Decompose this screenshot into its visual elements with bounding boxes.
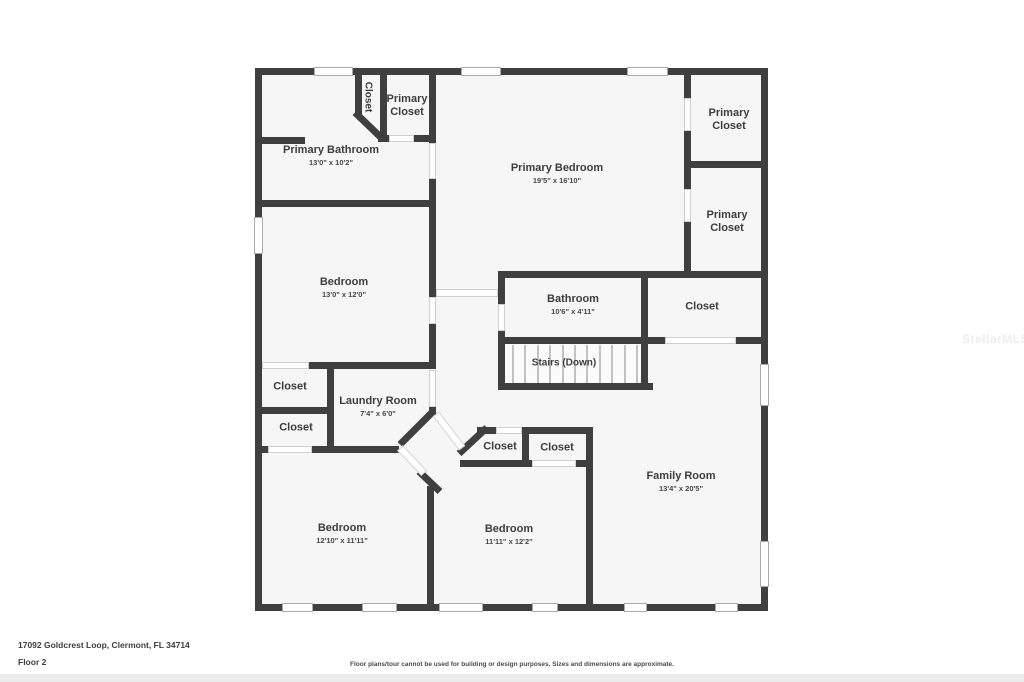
wall-segment bbox=[255, 68, 262, 611]
room-label-laundry-room: Laundry Room7'4" x 6'0" bbox=[339, 395, 417, 419]
room-label-family-room: Family Room13'4" x 20'5" bbox=[646, 470, 715, 494]
property-address: 17092 Goldcrest Loop, Clermont, FL 34714 bbox=[18, 640, 190, 650]
stair-tread bbox=[524, 345, 526, 383]
room-label-closet-rotated: Closet bbox=[362, 82, 375, 113]
room-label-closet-by-bathroom: Closet bbox=[685, 301, 719, 314]
window bbox=[624, 603, 647, 612]
room-label-primary-closet-right-1: Primary Closet bbox=[699, 107, 759, 133]
room-label-closet-c: Closet bbox=[483, 441, 517, 454]
stair-tread bbox=[636, 345, 638, 383]
window bbox=[760, 364, 769, 406]
window bbox=[439, 603, 483, 612]
room-label-bedroom-12x11: Bedroom12'10" x 11'11" bbox=[316, 522, 368, 546]
wall-segment bbox=[429, 179, 436, 297]
stair-tread bbox=[599, 345, 601, 383]
door-opening bbox=[268, 446, 312, 453]
door-opening bbox=[429, 297, 436, 324]
wall-segment bbox=[429, 324, 436, 365]
room-label-closet-d: Closet bbox=[540, 442, 574, 455]
wall-segment bbox=[498, 383, 653, 390]
window bbox=[760, 541, 769, 587]
wall-segment bbox=[684, 161, 768, 168]
window bbox=[254, 217, 263, 254]
wall-segment bbox=[684, 131, 691, 189]
stair-tread bbox=[624, 345, 626, 383]
stair-tread bbox=[611, 345, 613, 383]
window bbox=[314, 67, 353, 76]
door-opening bbox=[389, 135, 414, 142]
wall-segment bbox=[641, 271, 648, 390]
door-opening bbox=[429, 143, 436, 179]
room-label-stairs-down: Stairs (Down) bbox=[532, 357, 596, 370]
room-label-bathroom: Bathroom10'6" x 4'11" bbox=[547, 293, 599, 317]
window bbox=[461, 67, 501, 76]
window bbox=[532, 603, 558, 612]
door-opening bbox=[436, 289, 498, 297]
room-label-primary-bathroom: Primary Bathroom13'0" x 10'2" bbox=[283, 144, 379, 168]
wall-segment bbox=[684, 68, 691, 98]
room-label-primary-bedroom: Primary Bedroom19'5" x 16'10" bbox=[511, 162, 603, 186]
window bbox=[282, 603, 313, 612]
wall-segment bbox=[684, 222, 691, 278]
wall-segment bbox=[255, 200, 436, 207]
room-label-closet-a: Closet bbox=[273, 381, 307, 394]
wall-segment bbox=[255, 604, 768, 611]
wall-segment bbox=[427, 486, 434, 604]
mls-watermark: StellarMLS bbox=[962, 332, 1024, 346]
wall-segment bbox=[498, 271, 505, 304]
room-label-closet-b: Closet bbox=[279, 422, 313, 435]
wall-segment bbox=[498, 271, 768, 278]
room-label-bedroom-11x12: Bedroom11'11" x 12'2" bbox=[485, 523, 533, 547]
window bbox=[362, 603, 397, 612]
wall-segment bbox=[586, 427, 593, 604]
window bbox=[715, 603, 738, 612]
disclaimer-text: Floor plans/tour cannot be used for buil… bbox=[0, 661, 1024, 668]
door-opening bbox=[532, 460, 576, 467]
door-opening bbox=[684, 189, 691, 222]
floor-plan-page: Closet Primary Closet Primary Bathroom13… bbox=[0, 0, 1024, 682]
wall-segment bbox=[255, 407, 334, 414]
wall-segment bbox=[255, 137, 305, 144]
wall-segment bbox=[477, 427, 593, 434]
door-opening bbox=[498, 304, 505, 331]
floor-plan: Closet Primary Closet Primary Bathroom13… bbox=[0, 0, 1024, 682]
room-label-bedroom-13x12: Bedroom13'0" x 12'0" bbox=[320, 276, 368, 300]
door-opening bbox=[429, 370, 436, 407]
door-opening bbox=[684, 98, 691, 131]
window bbox=[627, 67, 668, 76]
room-label-primary-closet-right-2: Primary Closet bbox=[697, 209, 757, 235]
footer-strip bbox=[0, 674, 1024, 682]
room-label-primary-closet-topleft: Primary Closet bbox=[377, 93, 437, 119]
stair-tread bbox=[512, 345, 514, 383]
door-opening bbox=[496, 427, 522, 434]
door-opening bbox=[262, 362, 309, 369]
door-opening bbox=[665, 337, 736, 344]
